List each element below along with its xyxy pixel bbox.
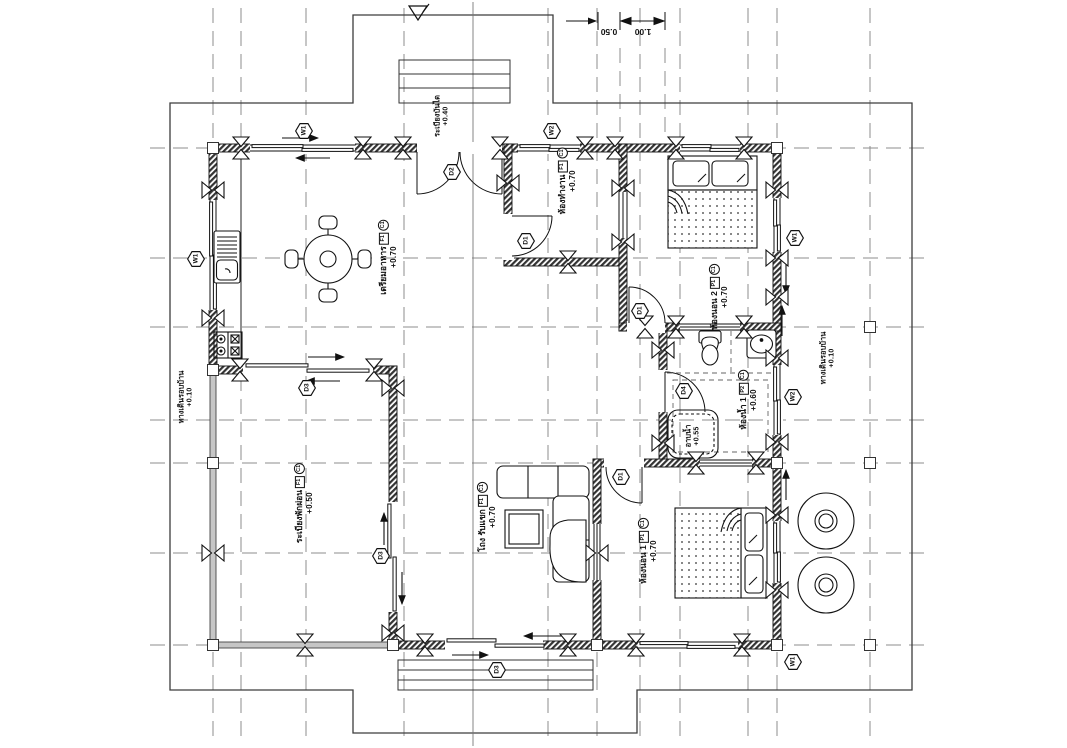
- room-name: อาบน้ำ: [685, 425, 694, 448]
- room-label-bedroom-1: ห้องนอน 1P1C1 +0.70: [638, 518, 658, 584]
- room-label-walkway-right: ทางเดินรอบบ้าน +0.10: [820, 332, 837, 385]
- floor-level: +0.60: [749, 370, 758, 430]
- floor-level: +0.70: [568, 148, 577, 215]
- floor-level: +0.70: [389, 219, 398, 294]
- ceiling-tag: C1: [378, 219, 389, 230]
- room-name: โถง รับแขก: [478, 509, 488, 552]
- floor-level: +0.10: [828, 332, 836, 385]
- floor-tag: P1: [709, 277, 719, 289]
- bed-1: [675, 508, 767, 598]
- floor-level: +0.70: [720, 264, 729, 330]
- room-label-walkway-left: ทางเดินรอบบ้าน +0.10: [178, 371, 195, 424]
- floor-level: +0.50: [305, 463, 314, 543]
- floor-level: +0.40: [442, 95, 450, 137]
- room-name: ห้องนอน 2: [710, 291, 720, 330]
- ceiling-tag: C1: [638, 518, 649, 529]
- wash-basin: [747, 330, 776, 358]
- room-name: ห้องนอน 1: [639, 545, 649, 584]
- room-label-terrace: ระเบียงพักผ่อนF1C1 +0.50: [294, 463, 314, 543]
- bed-2: [668, 156, 757, 248]
- ceiling-tag: C1: [477, 482, 488, 493]
- floor-tag: F1: [378, 232, 388, 244]
- room-label-office: ห้องทำงานF1C1 +0.70: [557, 148, 577, 215]
- dimension-label-large: 1.00: [635, 27, 652, 37]
- floor-tag: P2: [738, 383, 748, 395]
- ceiling-tag: C1: [709, 264, 720, 275]
- room-name: ทางเดินรอบบ้าน: [178, 371, 187, 424]
- floor-level: +0.10: [186, 371, 194, 424]
- room-name: ทางเดินรอบบ้าน: [820, 332, 829, 385]
- floor-tag: F1: [477, 495, 487, 507]
- floor-level: +0.55: [693, 425, 701, 448]
- room-name: ระเบียงบันได: [434, 95, 443, 137]
- ceiling-tag: C1: [294, 463, 305, 474]
- floor-plan-canvas: เตรียมอาหารF1C1 +0.70 ห้องทำงานF1C1 +0.7…: [0, 0, 1067, 748]
- dining-table: [285, 216, 371, 302]
- room-label-bedroom-2: ห้องนอน 2P1C1 +0.70: [709, 264, 729, 330]
- coffee-table: [505, 510, 543, 548]
- ceiling-tag: C1: [738, 370, 749, 381]
- room-label-bathroom-1: ห้องน้ำ 1P2C1 +0.60: [738, 370, 758, 430]
- room-label-stair-porch: ระเบียงบันได +0.40: [434, 95, 451, 137]
- room-name: ห้องน้ำ 1: [739, 397, 749, 430]
- dimension-label-small: 0.50: [601, 27, 618, 37]
- level-marker-icon: [409, 4, 429, 20]
- plan-linework: [0, 0, 1067, 748]
- stairs-north: [399, 60, 510, 103]
- toilet: [699, 331, 721, 365]
- ceiling-tag: C1: [557, 148, 568, 159]
- room-label-hall: โถง รับแขกF1C1 +0.70: [477, 482, 497, 552]
- room-label-food-prep: เตรียมอาหารF1C1 +0.70: [378, 219, 398, 294]
- floor-tag: P1: [638, 531, 648, 543]
- doors: [246, 152, 705, 647]
- room-name: เตรียมอาหาร: [379, 246, 389, 294]
- room-label-shower: อาบน้ำ +0.55: [685, 425, 702, 448]
- floor-tag: F1: [294, 476, 304, 488]
- floor-tag: F1: [557, 161, 567, 173]
- stove: [214, 332, 242, 358]
- kitchen-sink: [214, 231, 240, 283]
- room-name: ห้องทำงาน: [558, 175, 568, 215]
- floor-level: +0.70: [649, 518, 658, 584]
- floor-level: +0.70: [488, 482, 497, 552]
- room-name: ระเบียงพักผ่อน: [295, 490, 305, 543]
